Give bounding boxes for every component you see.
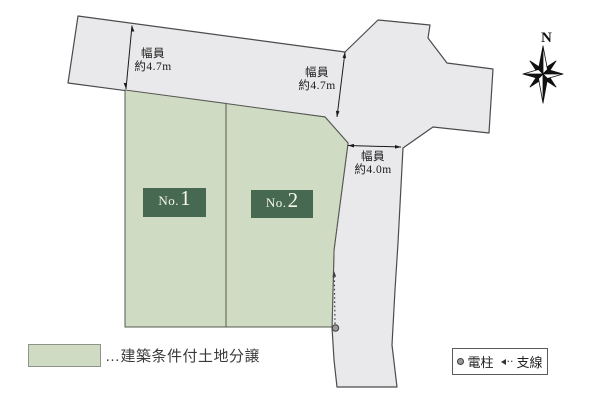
width-value: 約4.7m <box>127 61 179 74</box>
width-title: 幅員 <box>346 151 400 164</box>
compass-rose-icon <box>523 46 563 103</box>
guy-wire-legend-icon: ·· <box>501 359 514 365</box>
plot-no1-tag: No. 1 <box>143 188 206 217</box>
width-value: 約4.7m <box>291 80 343 93</box>
width-title: 幅員 <box>127 48 179 61</box>
site-plan: 幅員 約4.7m 幅員 約4.7m 幅員 約4.0m No. 1 No. 2 N… <box>0 0 600 400</box>
width-label-top-road: 幅員 約4.7m <box>127 48 179 73</box>
legend-land-note: …建築条件付土地分譲 <box>28 344 260 367</box>
guy-wire-arrow-icon <box>501 359 506 365</box>
plot-no2-prefix: No. <box>266 195 287 211</box>
width-label-side-road: 幅員 約4.0m <box>346 151 400 176</box>
utility-pole-legend-icon <box>457 358 464 365</box>
width-label-intersection: 幅員 約4.7m <box>291 67 343 92</box>
north-label: N <box>541 30 552 47</box>
guy-wire-label: 支線 <box>517 352 543 371</box>
symbol-legend-box: 電柱 ·· 支線 <box>452 348 548 375</box>
width-value: 約4.0m <box>346 164 400 177</box>
plot-no2-number: 2 <box>288 190 299 210</box>
guy-wire-dots-icon: ·· <box>507 359 514 365</box>
plot-no2-tag: No. 2 <box>251 190 313 218</box>
plot-no1-prefix: No. <box>158 193 179 209</box>
width-title: 幅員 <box>291 67 343 80</box>
plot-no1-number: 1 <box>180 188 191 208</box>
legend-land-note-text: …建築条件付土地分譲 <box>105 345 260 366</box>
plot-color-swatch <box>28 344 101 367</box>
utility-pole-label: 電柱 <box>467 352 493 371</box>
utility-pole-icon <box>332 325 338 331</box>
